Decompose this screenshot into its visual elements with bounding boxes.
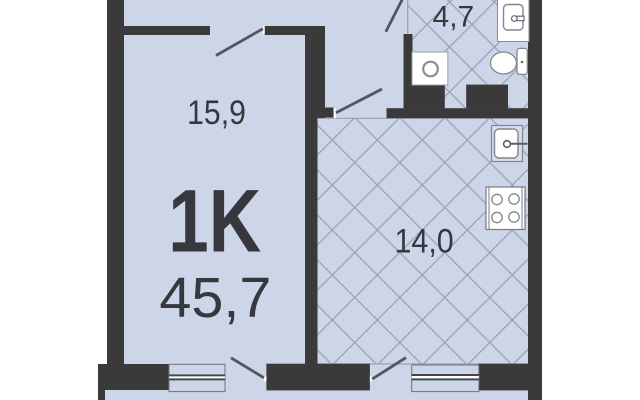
svg-text:1K: 1K <box>168 171 261 271</box>
svg-text:45,7: 45,7 <box>159 266 271 330</box>
svg-text:15,9: 15,9 <box>187 94 246 132</box>
svg-text:4,7: 4,7 <box>433 0 475 33</box>
svg-text:14,0: 14,0 <box>395 223 454 261</box>
